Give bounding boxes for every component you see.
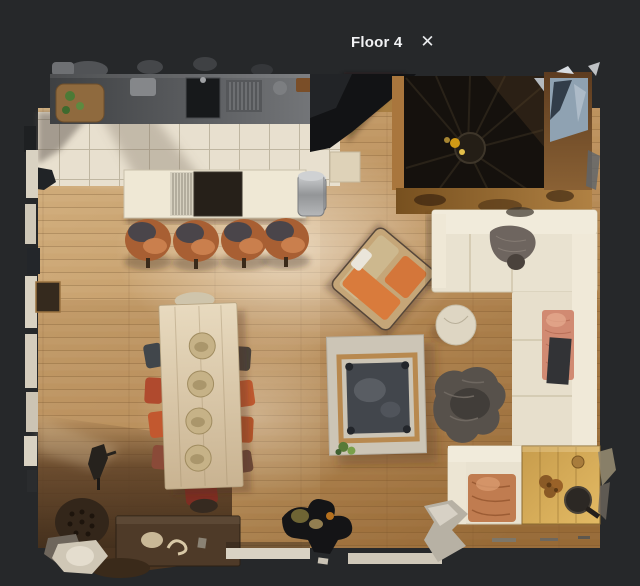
floorplan-viewport[interactable] xyxy=(0,0,640,586)
scan-edge-fragments xyxy=(598,448,616,520)
floorplan-header: Floor 4 ✕ xyxy=(351,32,438,53)
floor-title: Floor 4 xyxy=(351,34,402,51)
fireplace xyxy=(326,334,437,465)
close-icon[interactable]: ✕ xyxy=(417,32,437,53)
floorplan-image xyxy=(0,0,640,586)
corner-closet xyxy=(544,62,600,190)
kitchen-island xyxy=(124,170,324,224)
kitchen-counter xyxy=(50,57,322,124)
spiral-staircase xyxy=(392,76,546,190)
corner-wood-table xyxy=(522,446,600,524)
salmon-blanket xyxy=(542,310,574,385)
